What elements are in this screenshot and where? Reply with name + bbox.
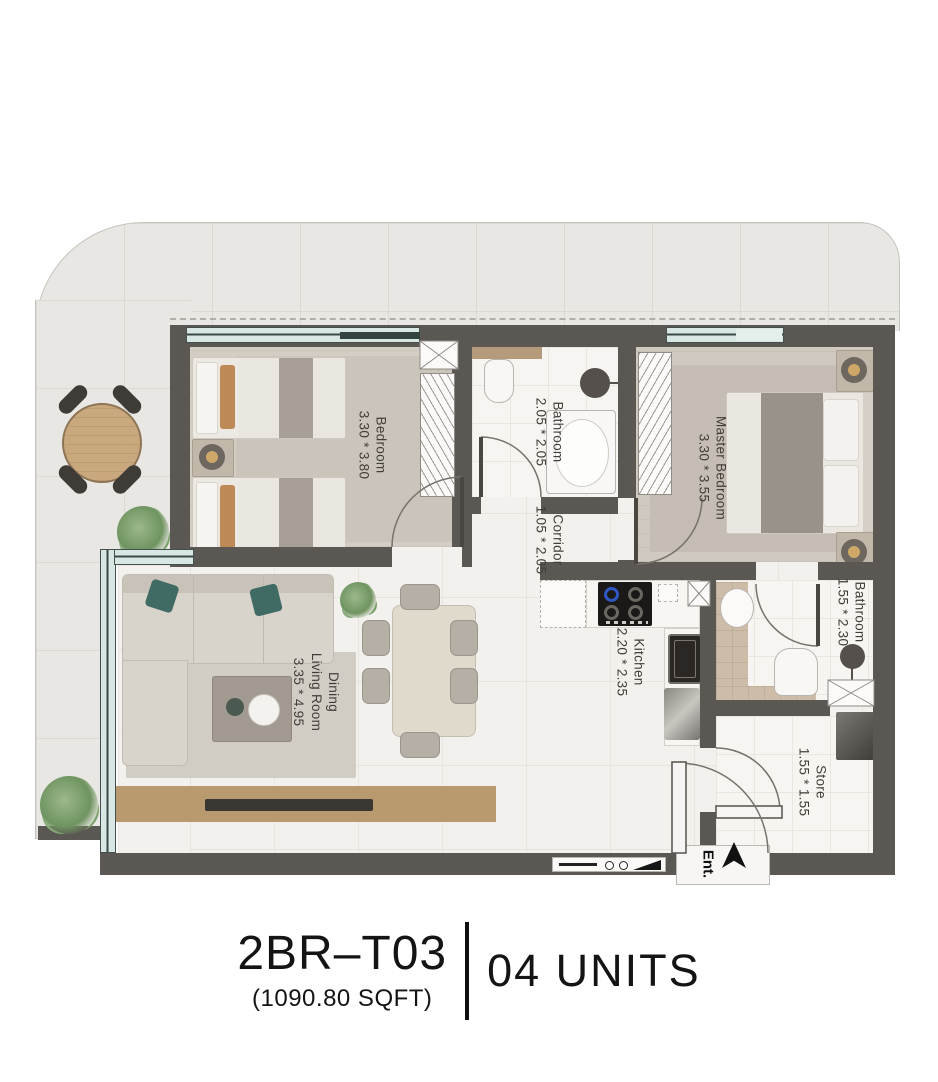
bedroom-wardrobe [420, 373, 455, 497]
room-label-bedroom: Bedroom 3.30 * 3.80 [355, 411, 390, 480]
stove-burner [604, 605, 619, 620]
dishwasher [658, 584, 678, 602]
room-label-kitchen: Kitchen 2.20 * 2.35 [613, 628, 648, 697]
level-marker [552, 857, 666, 872]
unit-code: 2BR–T03 [237, 929, 447, 979]
sofa-seam [193, 575, 194, 663]
coffee-table-plant [226, 698, 244, 716]
bed-pillow [196, 362, 218, 434]
dining-chair [450, 620, 478, 656]
marker-triangle [633, 860, 661, 870]
wall-east [873, 325, 895, 875]
room-dims: 1.05 * 2.05 [532, 506, 549, 575]
master-bed [726, 392, 874, 534]
master-wardrobe [638, 352, 672, 495]
room-dims: 2.05 * 2.05 [532, 398, 549, 467]
wall-west-upper [170, 347, 190, 567]
bed-single-1 [192, 357, 346, 439]
marker-circle [605, 861, 614, 870]
title-block: 2BR–T03 (1090.80 SQFT) 04 UNITS [0, 922, 938, 1020]
stove-burner [628, 605, 643, 620]
setout-dashes [170, 318, 895, 320]
master-window-panel [736, 329, 782, 341]
stove-burner [628, 587, 643, 602]
living-window-west [100, 549, 116, 853]
kitchen-upper-cabinet [540, 580, 586, 628]
room-dims: 3.30 * 3.55 [695, 416, 712, 520]
bedroom-sliding-door [340, 332, 420, 339]
floorplan-canvas: Bedroom 3.30 * 3.80 Bathroom 2.05 * 2.05… [0, 0, 938, 1082]
stove-burner [604, 587, 619, 602]
living-balcony-door [114, 549, 194, 565]
toilet [484, 359, 514, 403]
room-name: Kitchen [630, 628, 647, 697]
service-duct [836, 712, 874, 760]
room-label-dining-living: Dining Living Room 3.35 * 4.95 [290, 653, 342, 731]
room-name: Master Bedroom [712, 416, 729, 520]
wall-master-west-a [618, 347, 636, 498]
dining-chair [400, 584, 440, 610]
bed-pillow [823, 465, 859, 527]
bed-pillow [823, 399, 859, 461]
bed-pillow [196, 482, 218, 554]
entrance-threshold [676, 845, 770, 885]
potted-plant [40, 776, 98, 834]
room-dims: 2.20 * 2.35 [613, 628, 630, 697]
unit-count: 04 UNITS [487, 945, 701, 997]
coffee-table-tray [248, 694, 280, 726]
sofa-chaise [122, 660, 188, 766]
round-basin [840, 644, 865, 669]
bed-pillow-accent [220, 485, 235, 549]
room-label-master-bedroom: Master Bedroom 3.30 * 3.55 [695, 416, 730, 520]
bed-blanket [279, 358, 313, 438]
wall-south-right [770, 853, 895, 875]
room-name: Dining [325, 653, 342, 731]
basin-stem [851, 668, 853, 698]
room-label-bathroom1: Bathroom 2.05 * 2.05 [532, 398, 567, 467]
title-divider [465, 922, 469, 1020]
dining-chair [362, 668, 390, 704]
kitchen-sink [668, 634, 702, 684]
nightstand-lamp-inner [206, 451, 218, 463]
stove-controls [606, 621, 648, 624]
room-name: Living Room [307, 653, 324, 731]
room-name: Store [812, 748, 829, 817]
toilet [774, 648, 818, 696]
wall-bedroom-east [452, 347, 472, 547]
room-name: Bathroom [549, 398, 566, 467]
room-name: Bathroom [851, 578, 868, 647]
room-label-bathroom2: Bathroom 1.55 * 2.30 [834, 578, 869, 647]
unit-area: (1090.80 SQFT) [252, 985, 432, 1013]
washbasin [580, 368, 610, 398]
bathroom1-vanity [472, 347, 542, 359]
entrance-label: Ent. [700, 850, 717, 878]
dining-chair [362, 620, 390, 656]
wall-kitchen-north [540, 562, 756, 580]
basin-spout [608, 382, 618, 384]
bed-pillow-accent [220, 365, 235, 429]
dining-chair [450, 668, 478, 704]
room-name: Corridor [549, 506, 566, 575]
room-name: Bedroom [372, 411, 389, 480]
washbasin-oval [720, 588, 754, 628]
title-left: 2BR–T03 (1090.80 SQFT) [237, 929, 447, 1013]
room-dims: 1.55 * 1.55 [795, 748, 812, 817]
bed-throw [761, 393, 823, 533]
wall-living-north-a [186, 547, 392, 567]
entrance-label-text: Ent. [700, 850, 717, 878]
bed-headboard [863, 393, 873, 533]
marker-circle [619, 861, 628, 870]
dining-chair [400, 732, 440, 758]
wall-bath2-south [716, 700, 830, 716]
dining-plant [340, 582, 376, 618]
marker-bar [559, 863, 597, 866]
nightstand-lamp-inner [848, 364, 860, 376]
wall-bath1-south-a [472, 497, 481, 514]
room-label-store: Store 1.55 * 1.55 [795, 748, 830, 817]
room-dims: 3.35 * 4.95 [290, 653, 307, 731]
room-label-corridor: Corridor 1.05 * 2.05 [532, 506, 567, 575]
wall-living-north-b [462, 547, 472, 567]
nightstand-lamp-inner [848, 546, 860, 558]
refrigerator [664, 688, 700, 740]
wall-bath2-west [700, 580, 716, 748]
bed-blanket [279, 478, 313, 558]
room-dims: 1.55 * 2.30 [834, 578, 851, 647]
tv-screen [205, 799, 373, 811]
room-dims: 3.30 * 3.80 [355, 411, 372, 480]
kitchen-sink-basin [674, 640, 696, 678]
